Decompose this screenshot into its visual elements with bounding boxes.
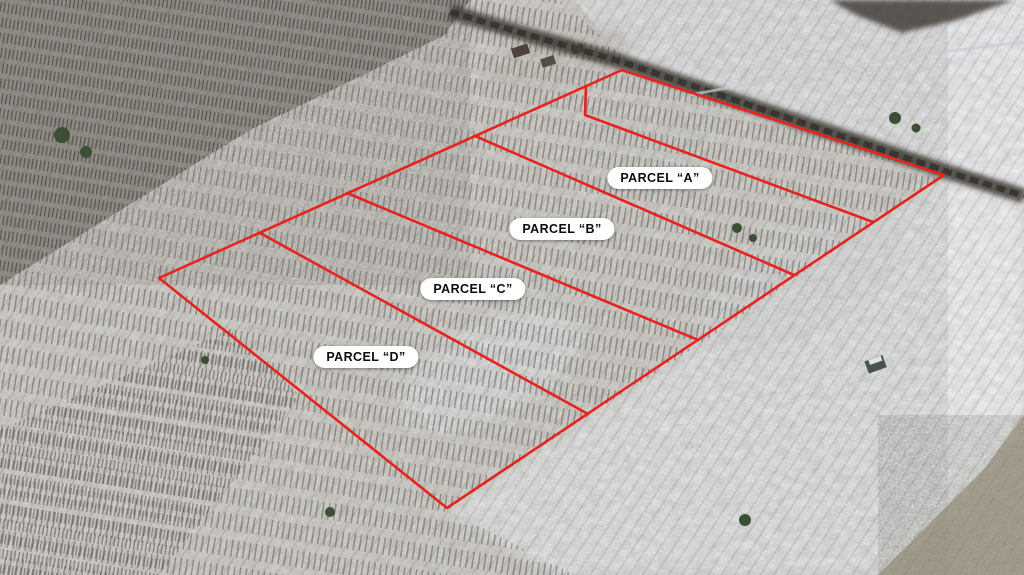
aerial-photo-background — [0, 0, 1024, 575]
aerial-parcel-map: PARCEL “A”PARCEL “B”PARCEL “C”PARCEL “D” — [0, 0, 1024, 575]
